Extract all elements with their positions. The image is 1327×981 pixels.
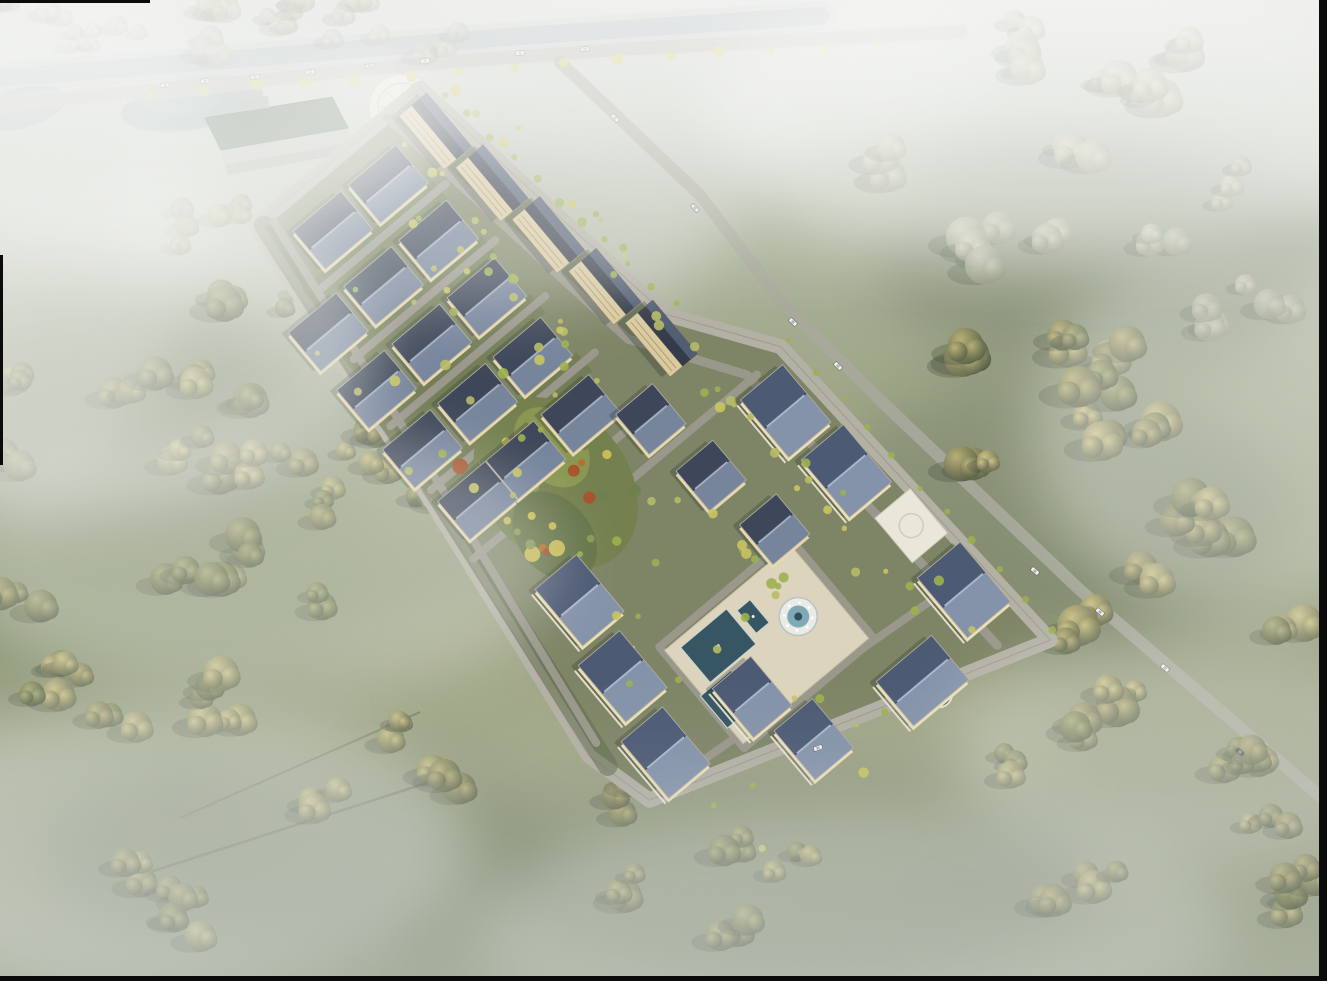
frame-edge-top xyxy=(0,0,150,3)
frame-edge-right xyxy=(1319,0,1327,981)
bottom-haze xyxy=(0,680,1327,981)
frame-edge-bottom xyxy=(0,976,1327,981)
aerial-community-rendering xyxy=(0,0,1327,981)
rendering-canvas xyxy=(0,0,1327,981)
frame-edge-left xyxy=(0,255,3,465)
atmosphere-layer xyxy=(0,0,1327,981)
